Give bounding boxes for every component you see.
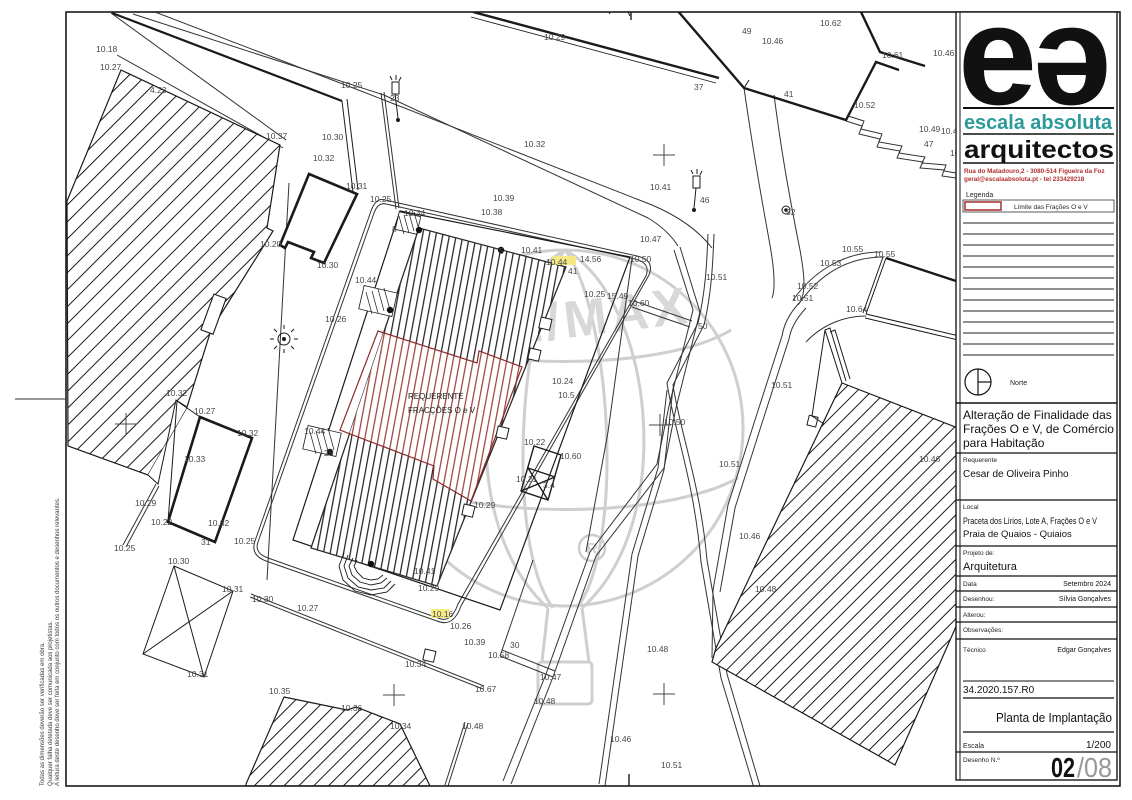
- svg-text:10.48: 10.48: [755, 584, 777, 594]
- svg-text:10.32: 10.32: [208, 518, 230, 528]
- svg-text:arquitectos: arquitectos: [964, 136, 1114, 164]
- svg-text:10.44: 10.44: [546, 257, 568, 267]
- svg-text:10.30: 10.30: [252, 594, 274, 604]
- svg-text:10.30: 10.30: [317, 260, 339, 270]
- svg-text:10.39: 10.39: [464, 637, 486, 647]
- svg-text:10.41: 10.41: [521, 245, 543, 255]
- svg-text:15.49: 15.49: [607, 291, 629, 301]
- svg-text:10.25: 10.25: [114, 543, 136, 553]
- svg-text:10.25: 10.25: [234, 536, 256, 546]
- svg-text:10.33: 10.33: [184, 454, 206, 464]
- svg-text:10.38: 10.38: [481, 207, 503, 217]
- svg-text:50: 50: [698, 321, 708, 331]
- svg-text:10.60: 10.60: [628, 298, 650, 308]
- svg-text:34.2020.157.R0: 34.2020.157.R0: [963, 685, 1035, 696]
- svg-text:10.67: 10.67: [475, 684, 497, 694]
- svg-text:Local: Local: [963, 504, 979, 511]
- svg-text:Requerente: Requerente: [963, 457, 997, 464]
- svg-text:10.5: 10.5: [558, 390, 575, 400]
- svg-text:Técnico: Técnico: [963, 647, 986, 654]
- svg-text:Escala: Escala: [963, 743, 984, 750]
- svg-text:10.46: 10.46: [933, 48, 955, 58]
- svg-text:10.25: 10.25: [370, 194, 392, 204]
- svg-text:10.18: 10.18: [96, 44, 118, 54]
- svg-text:10.53: 10.53: [820, 258, 842, 268]
- svg-text:REQUERENTE: REQUERENTE: [408, 392, 464, 401]
- svg-text:10.52: 10.52: [797, 281, 819, 291]
- svg-text:10.32: 10.32: [237, 428, 259, 438]
- svg-text:10.47: 10.47: [540, 672, 562, 682]
- svg-text:Projeto de:: Projeto de:: [963, 550, 995, 557]
- svg-text:10.29: 10.29: [474, 500, 496, 510]
- svg-text:Todas as dimensões deverão ser: Todas as dimensões deverão ser verificad…: [40, 642, 46, 786]
- svg-text:Alterou:: Alterou:: [963, 612, 986, 619]
- svg-text:Qualquer falha detetada deve s: Qualquer falha detetada deve ser comunic…: [48, 621, 54, 786]
- svg-text:10.60: 10.60: [560, 451, 582, 461]
- svg-text:Alteração de Finalidade das: Alteração de Finalidade das: [963, 408, 1112, 422]
- svg-text:FRACÇÕES O e V: FRACÇÕES O e V: [408, 406, 476, 415]
- svg-text:10.62: 10.62: [820, 18, 842, 28]
- svg-text:A leitura deste desenho deve s: A leitura deste desenho deve ser feita e…: [55, 497, 61, 786]
- svg-text:10.52: 10.52: [854, 100, 876, 110]
- svg-text:10.29: 10.29: [418, 583, 440, 593]
- svg-text:8: 8: [392, 224, 397, 234]
- svg-text:10.41: 10.41: [650, 182, 672, 192]
- svg-text:Rua do Matadouro,2 - 3080-514: Rua do Matadouro,2 - 3080-514 Figueira d…: [964, 168, 1105, 175]
- svg-text:10.16: 10.16: [432, 609, 454, 619]
- svg-text:10.36: 10.36: [341, 703, 363, 713]
- svg-text:30: 30: [510, 640, 520, 650]
- svg-text:10.34: 10.34: [404, 208, 426, 218]
- svg-text:10.29: 10.29: [135, 498, 157, 508]
- svg-text:10.51: 10.51: [719, 459, 741, 469]
- svg-text:10.32: 10.32: [524, 139, 546, 149]
- svg-text:10.35: 10.35: [269, 686, 291, 696]
- svg-text:10.24: 10.24: [552, 376, 574, 386]
- svg-text:/08: /08: [1077, 752, 1112, 783]
- svg-text:10.31: 10.31: [187, 669, 209, 679]
- svg-text:10.49: 10.49: [919, 124, 941, 134]
- svg-text:escala absoluta: escala absoluta: [964, 112, 1113, 134]
- svg-text:14.56: 14.56: [580, 254, 602, 264]
- svg-text:Observações:: Observações:: [963, 627, 1003, 634]
- svg-text:1/200: 1/200: [1086, 740, 1111, 751]
- svg-text:10.44: 10.44: [304, 426, 326, 436]
- svg-text:10.22: 10.22: [524, 437, 546, 447]
- svg-text:Norte: Norte: [1010, 380, 1027, 387]
- svg-text:10.47: 10.47: [640, 234, 662, 244]
- svg-text:10.32: 10.32: [166, 388, 188, 398]
- svg-text:Praceta dos Lírios, Lote A, Fr: Praceta dos Lírios, Lote A, Frações O e …: [963, 516, 1098, 527]
- svg-text:para Habitação: para Habitação: [963, 436, 1045, 450]
- svg-text:31: 31: [201, 537, 211, 547]
- svg-text:52: 52: [786, 207, 796, 217]
- svg-text:41: 41: [784, 89, 794, 99]
- svg-text:49: 49: [742, 26, 752, 36]
- svg-text:10.61: 10.61: [882, 50, 904, 60]
- svg-text:Legenda: Legenda: [966, 192, 993, 199]
- svg-text:Desenhou:: Desenhou:: [963, 596, 995, 603]
- svg-text:10.32: 10.32: [313, 153, 335, 163]
- svg-text:47: 47: [924, 139, 934, 149]
- svg-text:10.29: 10.29: [544, 32, 566, 42]
- svg-text:10.51: 10.51: [792, 293, 814, 303]
- svg-text:Cesar de Oliveira Pinho: Cesar de Oliveira Pinho: [963, 469, 1069, 480]
- svg-text:3.4: 3.4: [543, 480, 555, 490]
- svg-text:10.27: 10.27: [100, 62, 122, 72]
- svg-text:Límite das Frações O e V: Límite das Frações O e V: [1014, 204, 1088, 211]
- svg-text:10.51: 10.51: [706, 272, 728, 282]
- svg-text:10.41: 10.41: [414, 566, 436, 576]
- svg-text:4.23: 4.23: [150, 85, 167, 95]
- svg-text:10.27: 10.27: [297, 603, 319, 613]
- svg-text:10.26: 10.26: [450, 621, 472, 631]
- svg-text:10.26: 10.26: [325, 314, 347, 324]
- svg-text:10.50: 10.50: [630, 254, 652, 264]
- svg-text:Desenho N.º: Desenho N.º: [963, 757, 1000, 764]
- svg-text:10.21: 10.21: [516, 474, 538, 484]
- svg-text:10.25: 10.25: [584, 289, 606, 299]
- svg-text:10.64: 10.64: [846, 304, 868, 314]
- svg-text:10.30: 10.30: [322, 132, 344, 142]
- svg-text:10.34: 10.34: [390, 721, 412, 731]
- svg-text:10.25: 10.25: [341, 80, 363, 90]
- svg-text:10.55: 10.55: [874, 249, 896, 259]
- svg-text:10.44: 10.44: [355, 275, 377, 285]
- svg-text:10.31: 10.31: [222, 584, 244, 594]
- svg-text:10.51: 10.51: [771, 380, 793, 390]
- svg-text:Arquitetura: Arquitetura: [963, 561, 1018, 573]
- svg-text:28: 28: [324, 448, 334, 458]
- svg-text:Praia de Quaios - Quiaios: Praia de Quaios - Quiaios: [963, 529, 1072, 540]
- svg-text:10.46: 10.46: [762, 36, 784, 46]
- svg-text:Planta de Implantação: Planta de Implantação: [996, 711, 1112, 725]
- svg-text:10.46: 10.46: [739, 531, 761, 541]
- svg-text:10.50: 10.50: [664, 417, 686, 427]
- svg-text:10.48: 10.48: [534, 696, 556, 706]
- svg-text:Frações O e V, de Comércio: Frações O e V, de Comércio: [963, 422, 1114, 436]
- svg-text:Edgar Gonçalves: Edgar Gonçalves: [1057, 647, 1111, 654]
- svg-text:10.31: 10.31: [346, 181, 368, 191]
- svg-text:02: 02: [1051, 752, 1075, 783]
- svg-text:10.58: 10.58: [488, 650, 510, 660]
- svg-text:geral@escalaabsoluta.pt - tel: geral@escalaabsoluta.pt - tel 233429218: [964, 176, 1085, 183]
- svg-text:10.48: 10.48: [462, 721, 484, 731]
- svg-text:10.22: 10.22: [151, 517, 173, 527]
- svg-text:10.39: 10.39: [493, 193, 515, 203]
- svg-text:10.46: 10.46: [610, 734, 632, 744]
- svg-text:5: 5: [499, 246, 504, 256]
- svg-text:46: 46: [700, 195, 710, 205]
- svg-text:Setembro 2024: Setembro 2024: [1063, 581, 1111, 588]
- svg-text:41: 41: [568, 266, 578, 276]
- svg-text:37: 37: [694, 82, 704, 92]
- svg-text:10.20: 10.20: [260, 239, 282, 249]
- svg-text:Data: Data: [963, 581, 977, 588]
- svg-text:10.37: 10.37: [266, 131, 288, 141]
- svg-text:10.46: 10.46: [919, 454, 941, 464]
- svg-text:10.27: 10.27: [194, 406, 216, 416]
- svg-text:Sílvia Gonçalves: Sílvia Gonçalves: [1059, 596, 1112, 603]
- svg-text:23: 23: [390, 93, 400, 103]
- svg-text:10.51: 10.51: [661, 760, 683, 770]
- svg-text:10.30: 10.30: [168, 556, 190, 566]
- svg-text:10.34: 10.34: [405, 659, 427, 669]
- svg-text:10.48: 10.48: [647, 644, 669, 654]
- svg-text:10.55: 10.55: [842, 244, 864, 254]
